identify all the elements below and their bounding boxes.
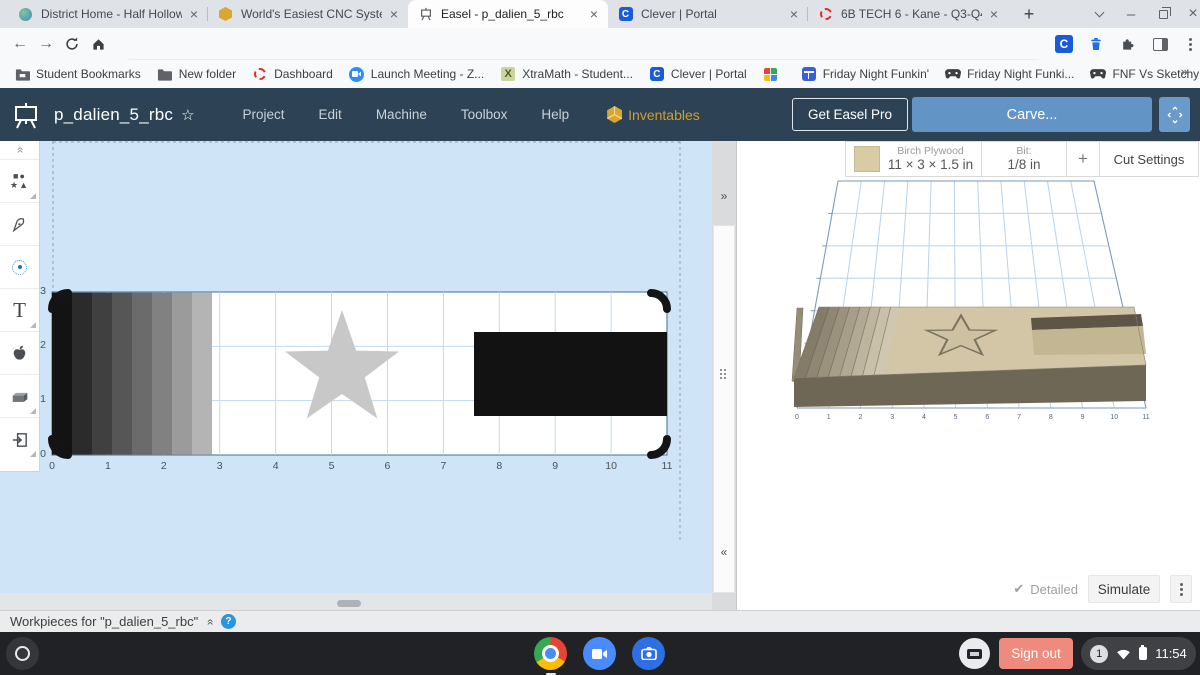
svg-text:9: 9 [1081, 414, 1085, 421]
browser-toolbar: ← → easel.inventables.com/projects/3eC6R… [0, 28, 1200, 60]
check-icon: ✔ [1013, 581, 1024, 597]
brand-label: Inventables [628, 107, 700, 123]
detailed-label: Detailed [1030, 582, 1078, 597]
simulate-row: ✔ Detailed Simulate [1013, 575, 1192, 603]
forward-icon[interactable]: → [34, 32, 58, 56]
gradient-bars-shape[interactable] [52, 293, 212, 455]
bookmark-clever-portal[interactable]: C Clever | Portal [643, 63, 753, 85]
simulate-button[interactable]: Simulate [1088, 575, 1160, 603]
bookmark-label: Clever | Portal [671, 67, 747, 81]
project-title[interactable]: p_dalien_5_rbc [54, 105, 173, 125]
collapse-up-icon[interactable]: » [203, 618, 217, 625]
chromeos-shelf: Sign out 1 11:54 [0, 632, 1200, 675]
tab-search-icon[interactable] [1086, 0, 1112, 28]
side-panel-icon[interactable] [1148, 32, 1172, 56]
zoom-app-icon[interactable] [583, 637, 616, 670]
battery-icon [1139, 647, 1147, 660]
horizontal-scroll-thumb[interactable] [337, 600, 361, 607]
easel-logo-icon [10, 99, 42, 131]
clock: 11:54 [1155, 646, 1187, 661]
tab-title: Easel - p_dalien_5_rbc [441, 7, 582, 21]
pinwheel-icon [763, 66, 779, 82]
bookmark-zoom-meeting[interactable]: Launch Meeting - Z... [343, 63, 490, 85]
design-canvas[interactable]: 012345678910113210 inch mm − + [0, 141, 712, 610]
svg-text:3: 3 [890, 414, 894, 421]
menu-project[interactable]: Project [243, 107, 285, 122]
favorite-star-icon[interactable]: ☆ [181, 106, 194, 124]
clever-favicon-icon: C [618, 7, 633, 22]
status-tray[interactable]: 1 11:54 [1081, 637, 1196, 670]
divider-track[interactable] [713, 225, 735, 593]
camera-app-icon[interactable] [632, 637, 665, 670]
preview-axis-labels: 01234567891011 [795, 414, 1150, 421]
bookmark-label: Student Bookmarks [36, 67, 141, 81]
classroom-favicon-icon [818, 7, 833, 22]
import-tool-button[interactable] [0, 417, 39, 460]
collapse-palette-icon[interactable]: » [0, 141, 39, 159]
text-tool-button[interactable]: T [0, 288, 39, 331]
home-icon[interactable] [86, 32, 110, 56]
simulate-menu-button[interactable] [1170, 575, 1192, 603]
bookmark-label: Dashboard [274, 67, 333, 81]
bookmarks-overflow-icon[interactable]: » [1181, 64, 1188, 79]
globe-favicon-icon [18, 7, 33, 22]
bookmark-xtramath[interactable]: X XtraMath - Student... [494, 63, 639, 85]
folder-icon [157, 66, 173, 82]
svg-text:5: 5 [954, 414, 958, 421]
bookmark-dashboard[interactable]: Dashboard [246, 63, 339, 85]
bookmark-label: Launch Meeting - Z... [371, 67, 484, 81]
tab-close-icon[interactable]: × [190, 7, 198, 21]
notification-badge: 1 [1090, 645, 1108, 663]
divider-drag-handle[interactable] [720, 369, 728, 379]
tab-title: Clever | Portal [641, 7, 782, 21]
screen: District Home - Half Hollow Hi × World's… [0, 0, 1200, 675]
svg-text:6: 6 [985, 414, 989, 421]
launcher-button[interactable] [6, 637, 39, 670]
workpieces-bar[interactable]: Workpieces for "p_dalien_5_rbc" » ? [0, 610, 1200, 632]
tab-district-home[interactable]: District Home - Half Hollow Hi × [8, 0, 208, 28]
gamepad-icon [945, 66, 961, 82]
tab-classroom[interactable]: 6B TECH 6 - Kane - Q3-Q4 × [808, 0, 1008, 28]
expand-right-icon[interactable]: » [712, 189, 736, 203]
xtramath-icon: X [500, 66, 516, 82]
bookmark-label: Friday Night Funki... [967, 67, 1074, 81]
chrome-app-icon[interactable] [534, 637, 567, 670]
design-library-apple-button[interactable] [0, 331, 39, 374]
collapse-left-icon[interactable]: « [712, 545, 736, 559]
get-easel-pro-button[interactable]: Get Easel Pro [792, 98, 908, 131]
extensions-puzzle-icon[interactable] [1116, 32, 1140, 56]
hexagon-favicon-icon [218, 7, 233, 22]
bookmark-new-folder[interactable]: New folder [151, 63, 242, 85]
svg-text:11: 11 [1142, 414, 1149, 421]
bookmark-student-bookmarks[interactable]: Student Bookmarks [8, 63, 147, 85]
browser-tabstrip: District Home - Half Hollow Hi × World's… [0, 0, 1200, 28]
bookmark-label: New folder [179, 67, 236, 81]
svg-text:8: 8 [1049, 414, 1053, 421]
svg-text:1: 1 [827, 414, 831, 421]
lego-brick-button[interactable] [0, 374, 39, 417]
clever-icon: C [649, 66, 665, 82]
menu-help[interactable]: Help [541, 107, 569, 122]
clever-extension-icon[interactable]: C [1052, 32, 1076, 56]
tab-title: 6B TECH 6 - Kane - Q3-Q4 [841, 7, 982, 21]
drill-point-tool-button[interactable] [0, 245, 39, 288]
workpiece-2d-view[interactable] [0, 141, 712, 593]
shapes-tool-button[interactable]: ■●★▲ [0, 159, 39, 202]
bookmarks-bar: Student Bookmarks New folder Dashboard L… [0, 60, 1200, 88]
bookmark-fnf[interactable]: Friday Night Funkin' [795, 63, 935, 85]
inventables-logo-icon [607, 106, 622, 123]
gamepad-icon [1090, 66, 1106, 82]
carved-stock-3d [792, 307, 1146, 407]
detailed-toggle[interactable]: ✔ Detailed [1013, 581, 1078, 597]
bookmark-label: Friday Night Funkin' [823, 67, 929, 81]
easel-tool-palette: » ■●★▲ T [0, 141, 40, 472]
pocket-rect-shape[interactable] [474, 332, 667, 416]
tab-clever-portal[interactable]: C Clever | Portal × [608, 0, 808, 28]
browser-menu-icon[interactable] [1178, 32, 1200, 56]
new-tab-button[interactable]: + [1016, 0, 1042, 28]
menu-toolbox[interactable]: Toolbox [461, 107, 508, 122]
menu-machine[interactable]: Machine [376, 107, 427, 122]
svg-text:7: 7 [1017, 414, 1021, 421]
tab-close-icon[interactable]: × [590, 7, 598, 21]
sign-out-button[interactable]: Sign out [999, 638, 1073, 669]
menu-edit[interactable]: Edit [319, 107, 342, 122]
svg-text:0: 0 [795, 414, 799, 421]
zoom-camera-icon [349, 66, 365, 82]
window-minimize-button[interactable]: – [1118, 0, 1144, 28]
workpieces-label: Workpieces for "p_dalien_5_rbc" [10, 614, 198, 629]
easel-favicon-icon [418, 7, 433, 22]
tab-close-icon[interactable]: × [990, 7, 998, 21]
tab-title: District Home - Half Hollow Hi [41, 7, 182, 21]
dashed-circle-icon [252, 66, 268, 82]
jog-arrows-button[interactable] [1159, 97, 1190, 132]
trash-extension-icon[interactable] [1084, 32, 1108, 56]
window-grid-icon [801, 66, 817, 82]
carve-button[interactable]: Carve... [912, 97, 1152, 132]
svg-text:2: 2 [859, 414, 863, 421]
tab-close-icon[interactable]: × [790, 7, 798, 21]
wifi-icon [1116, 648, 1131, 660]
screen-capture-tray-icon[interactable] [959, 638, 990, 669]
tab-cnc-system[interactable]: World's Easiest CNC System fo × [208, 0, 408, 28]
back-icon[interactable]: ← [8, 32, 32, 56]
panel-divider[interactable]: » « [712, 141, 736, 610]
tab-title: World's Easiest CNC System fo [241, 7, 382, 21]
svg-text:10: 10 [1110, 414, 1118, 421]
tab-close-icon[interactable]: × [390, 7, 398, 21]
pen-tool-button[interactable] [0, 202, 39, 245]
svg-text:4: 4 [922, 414, 926, 421]
reload-icon[interactable] [60, 32, 84, 56]
help-icon[interactable]: ? [221, 614, 236, 629]
preview-panel: Birch Plywood 11 × 3 × 1.5 in Bit: 1/8 i… [736, 141, 1200, 610]
preview-3d-view[interactable]: 01234567891011 [737, 141, 1200, 571]
easel-header: p_dalien_5_rbc ☆ Project Edit Machine To… [0, 88, 1200, 141]
tab-easel-active[interactable]: Easel - p_dalien_5_rbc × [408, 0, 608, 28]
window-restore-button[interactable] [1150, 0, 1176, 28]
managed-folder-icon [14, 66, 30, 82]
bookmark-fnf-2[interactable]: Friday Night Funki... [939, 63, 1080, 85]
window-close-button[interactable]: × [1180, 0, 1200, 28]
inventables-brand[interactable]: Inventables [607, 106, 700, 123]
bookmark-label: XtraMath - Student... [522, 67, 633, 81]
bookmark-pinwheel[interactable] [757, 63, 791, 85]
